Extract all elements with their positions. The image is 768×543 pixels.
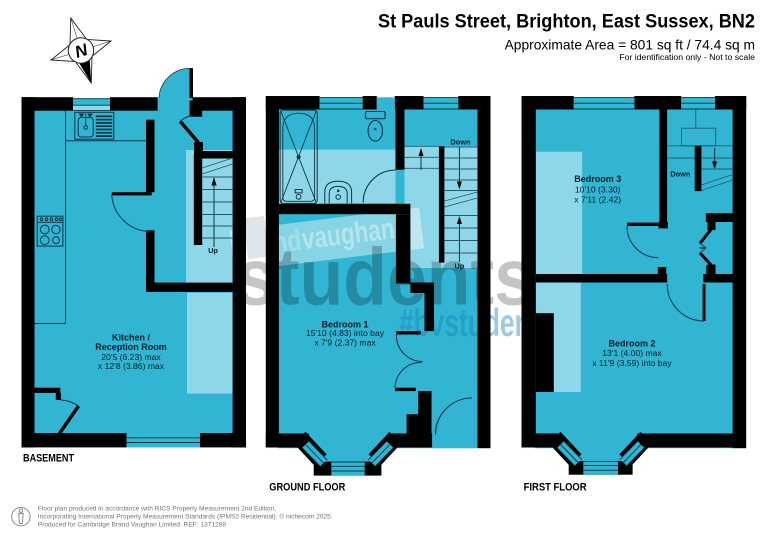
svg-text:GROUND FLOOR: GROUND FLOOR: [269, 482, 345, 494]
svg-text:Floor plan produced in accorda: Floor plan produced in accordance with R…: [38, 506, 276, 513]
svg-text:10'10 (3.30): 10'10 (3.30): [575, 184, 621, 194]
svg-text:St Pauls Street, Brighton, Eas: St Pauls Street, Brighton, East Sussex, …: [378, 11, 755, 33]
svg-text:Bedroom 3: Bedroom 3: [574, 174, 621, 184]
svg-text:x 12'8 (3.86) max: x 12'8 (3.86) max: [98, 361, 165, 371]
svg-text:BASEMENT: BASEMENT: [23, 453, 74, 465]
svg-text:Down: Down: [670, 170, 691, 179]
svg-text:Up: Up: [208, 246, 218, 255]
svg-text:x 7'9 (2.37) max: x 7'9 (2.37) max: [314, 337, 376, 347]
svg-text:Up: Up: [454, 262, 464, 271]
svg-text:FIRST FLOOR: FIRST FLOOR: [524, 482, 587, 494]
svg-text:Produced for Cambridge Brand V: Produced for Cambridge Brand Vaughan Lim…: [38, 522, 227, 529]
svg-text:Bedroom 2: Bedroom 2: [608, 339, 655, 349]
svg-text:Reception Room: Reception Room: [95, 342, 167, 352]
svg-text:Approximate Area = 801 sq ft /: Approximate Area = 801 sq ft / 74.4 sq m: [505, 38, 755, 53]
svg-text:x 11'9 (3.59) into bay: x 11'9 (3.59) into bay: [592, 358, 672, 368]
svg-text:For identification only - Not: For identification only - Not to scale: [619, 52, 755, 62]
svg-text:Incorporating International Pr: Incorporating International Property Mea…: [38, 513, 333, 521]
svg-text:Down: Down: [450, 138, 471, 147]
svg-text:Kitchen /: Kitchen /: [112, 333, 151, 343]
svg-text:13'1 (4.00) max: 13'1 (4.00) max: [602, 348, 662, 358]
svg-text:x 7'11 (2.42): x 7'11 (2.42): [574, 195, 621, 205]
